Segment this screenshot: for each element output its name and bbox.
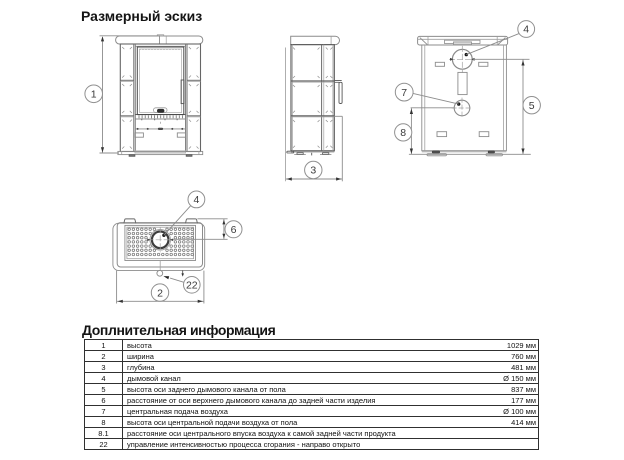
svg-text:5: 5 [529,100,535,112]
svg-text:8: 8 [400,127,406,139]
svg-text:1: 1 [91,88,97,100]
svg-text:22: 22 [186,279,198,291]
svg-text:4: 4 [523,24,529,36]
svg-text:4: 4 [193,194,199,206]
svg-text:3: 3 [310,165,316,177]
svg-text:2: 2 [157,287,163,299]
svg-text:6: 6 [231,224,237,236]
svg-text:7: 7 [401,87,407,99]
